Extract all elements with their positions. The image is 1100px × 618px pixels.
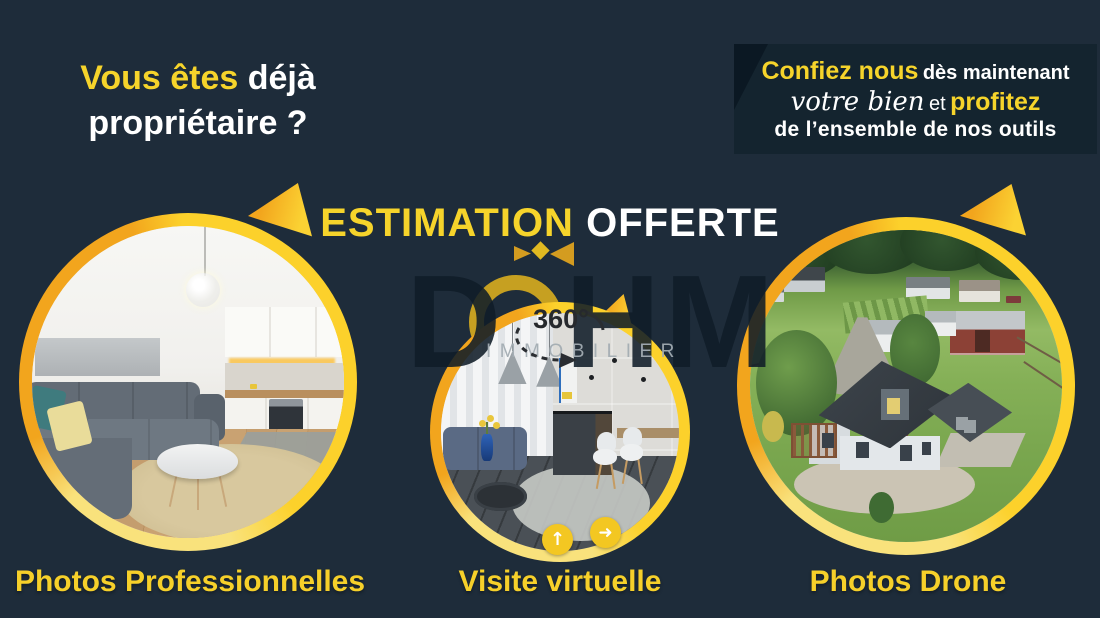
arrow-right-icon: ➜: [590, 517, 621, 548]
headline-rest: déjà: [248, 59, 316, 97]
real-estate-poster: Vous êtes déjà propriétaire ? Confiez no…: [0, 0, 1100, 618]
offer-line2: votre bien et profitez: [734, 87, 1097, 117]
offer-box: Confiez nous dès maintenant votre bien e…: [734, 44, 1097, 154]
arrow-up-icon: ↑: [542, 524, 573, 555]
offer-line3: de l’ensemble de nos outils: [734, 118, 1097, 142]
badge-360-label: 360°: [533, 304, 589, 334]
estimation-accent: ESTIMATION: [320, 201, 574, 245]
drone-photo: [750, 230, 1062, 542]
rotate-360-icon: 360°: [505, 296, 617, 376]
offer-line1-rest: dès maintenant: [923, 62, 1070, 84]
photo-circle-professional: [19, 213, 357, 551]
living-room-photo: [32, 226, 344, 538]
headline-line2: propriétaire ?: [88, 104, 307, 142]
coffee-table: [157, 444, 238, 478]
label-photos-professionnelles: Photos Professionnelles: [15, 565, 365, 599]
offer-line1: Confiez nous dès maintenant: [734, 57, 1097, 86]
headline: Vous êtes déjà propriétaire ?: [15, 56, 381, 146]
label-visite-virtuelle: Visite virtuelle: [459, 565, 662, 599]
photo-circle-drone: [737, 217, 1075, 555]
brand-letter-d: D: [406, 256, 505, 388]
headline-accent: Vous êtes: [80, 59, 238, 97]
pendant-light: [186, 273, 220, 307]
offer-line2-mid: et: [929, 93, 946, 115]
crown-icon: [510, 240, 576, 272]
offer-line1-accent: Confiez nous: [761, 57, 918, 85]
offer-line2-script: votre bien: [791, 87, 925, 117]
label-photos-drone: Photos Drone: [810, 565, 1007, 599]
offer-line2-accent: profitez: [950, 88, 1040, 116]
